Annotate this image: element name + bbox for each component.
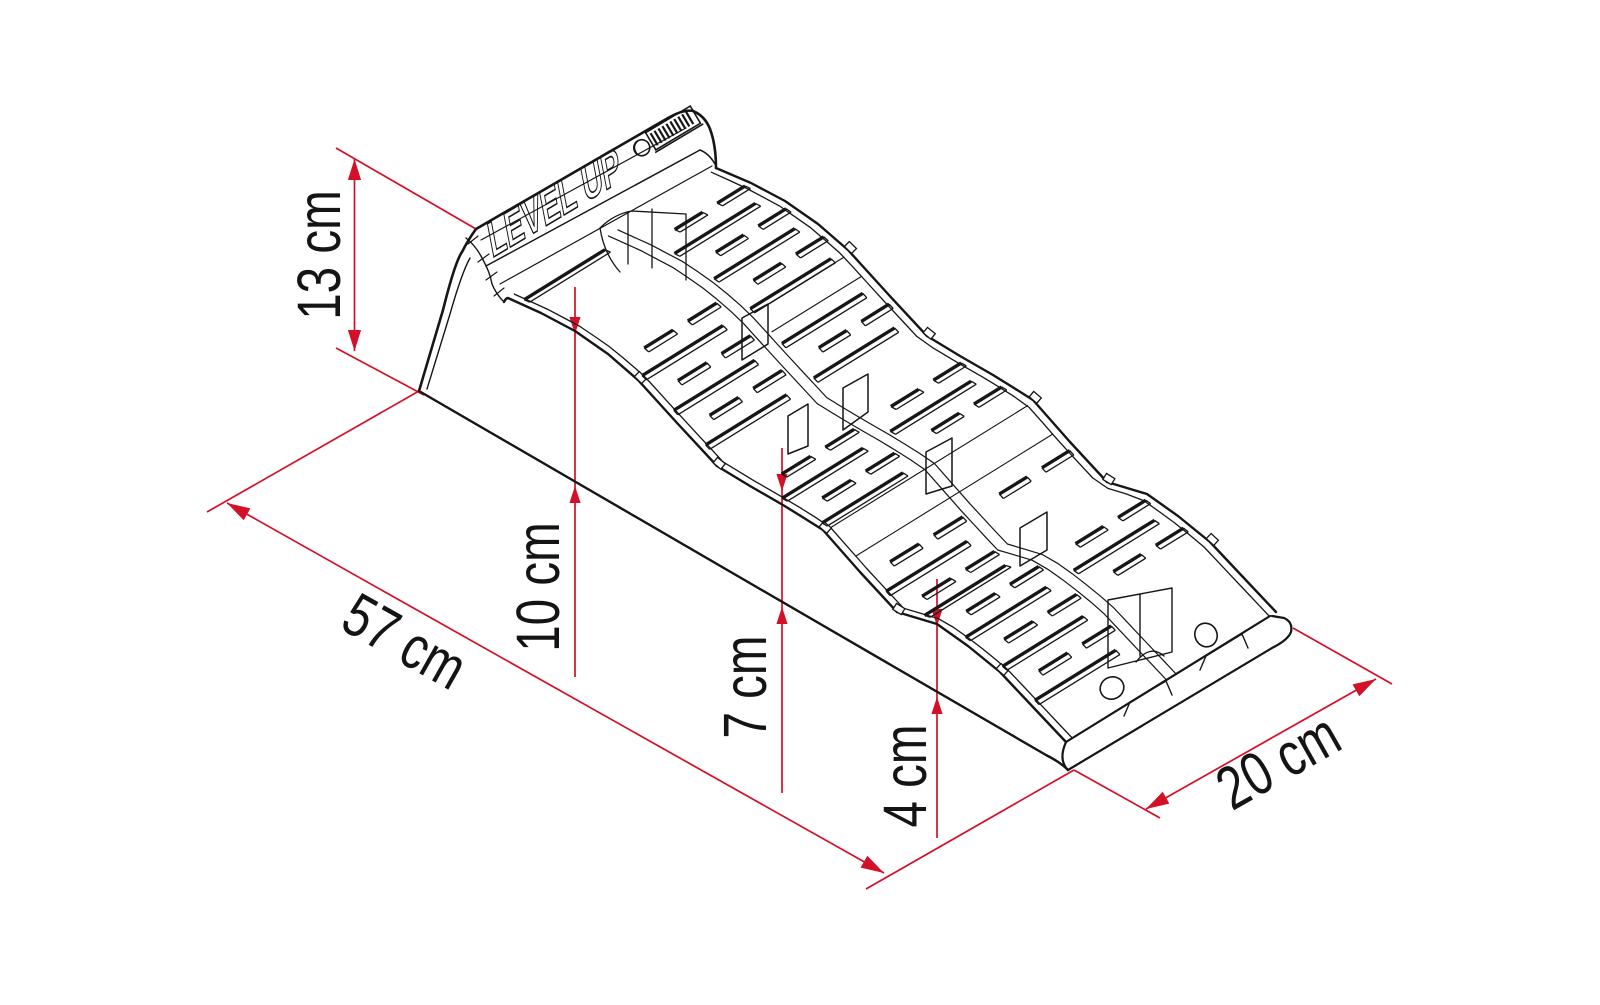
svg-text:7 cm: 7 cm [710, 635, 779, 738]
svg-text:13 cm: 13 cm [284, 190, 353, 320]
svg-text:10 cm: 10 cm [503, 522, 572, 652]
svg-text:4 cm: 4 cm [870, 724, 939, 827]
